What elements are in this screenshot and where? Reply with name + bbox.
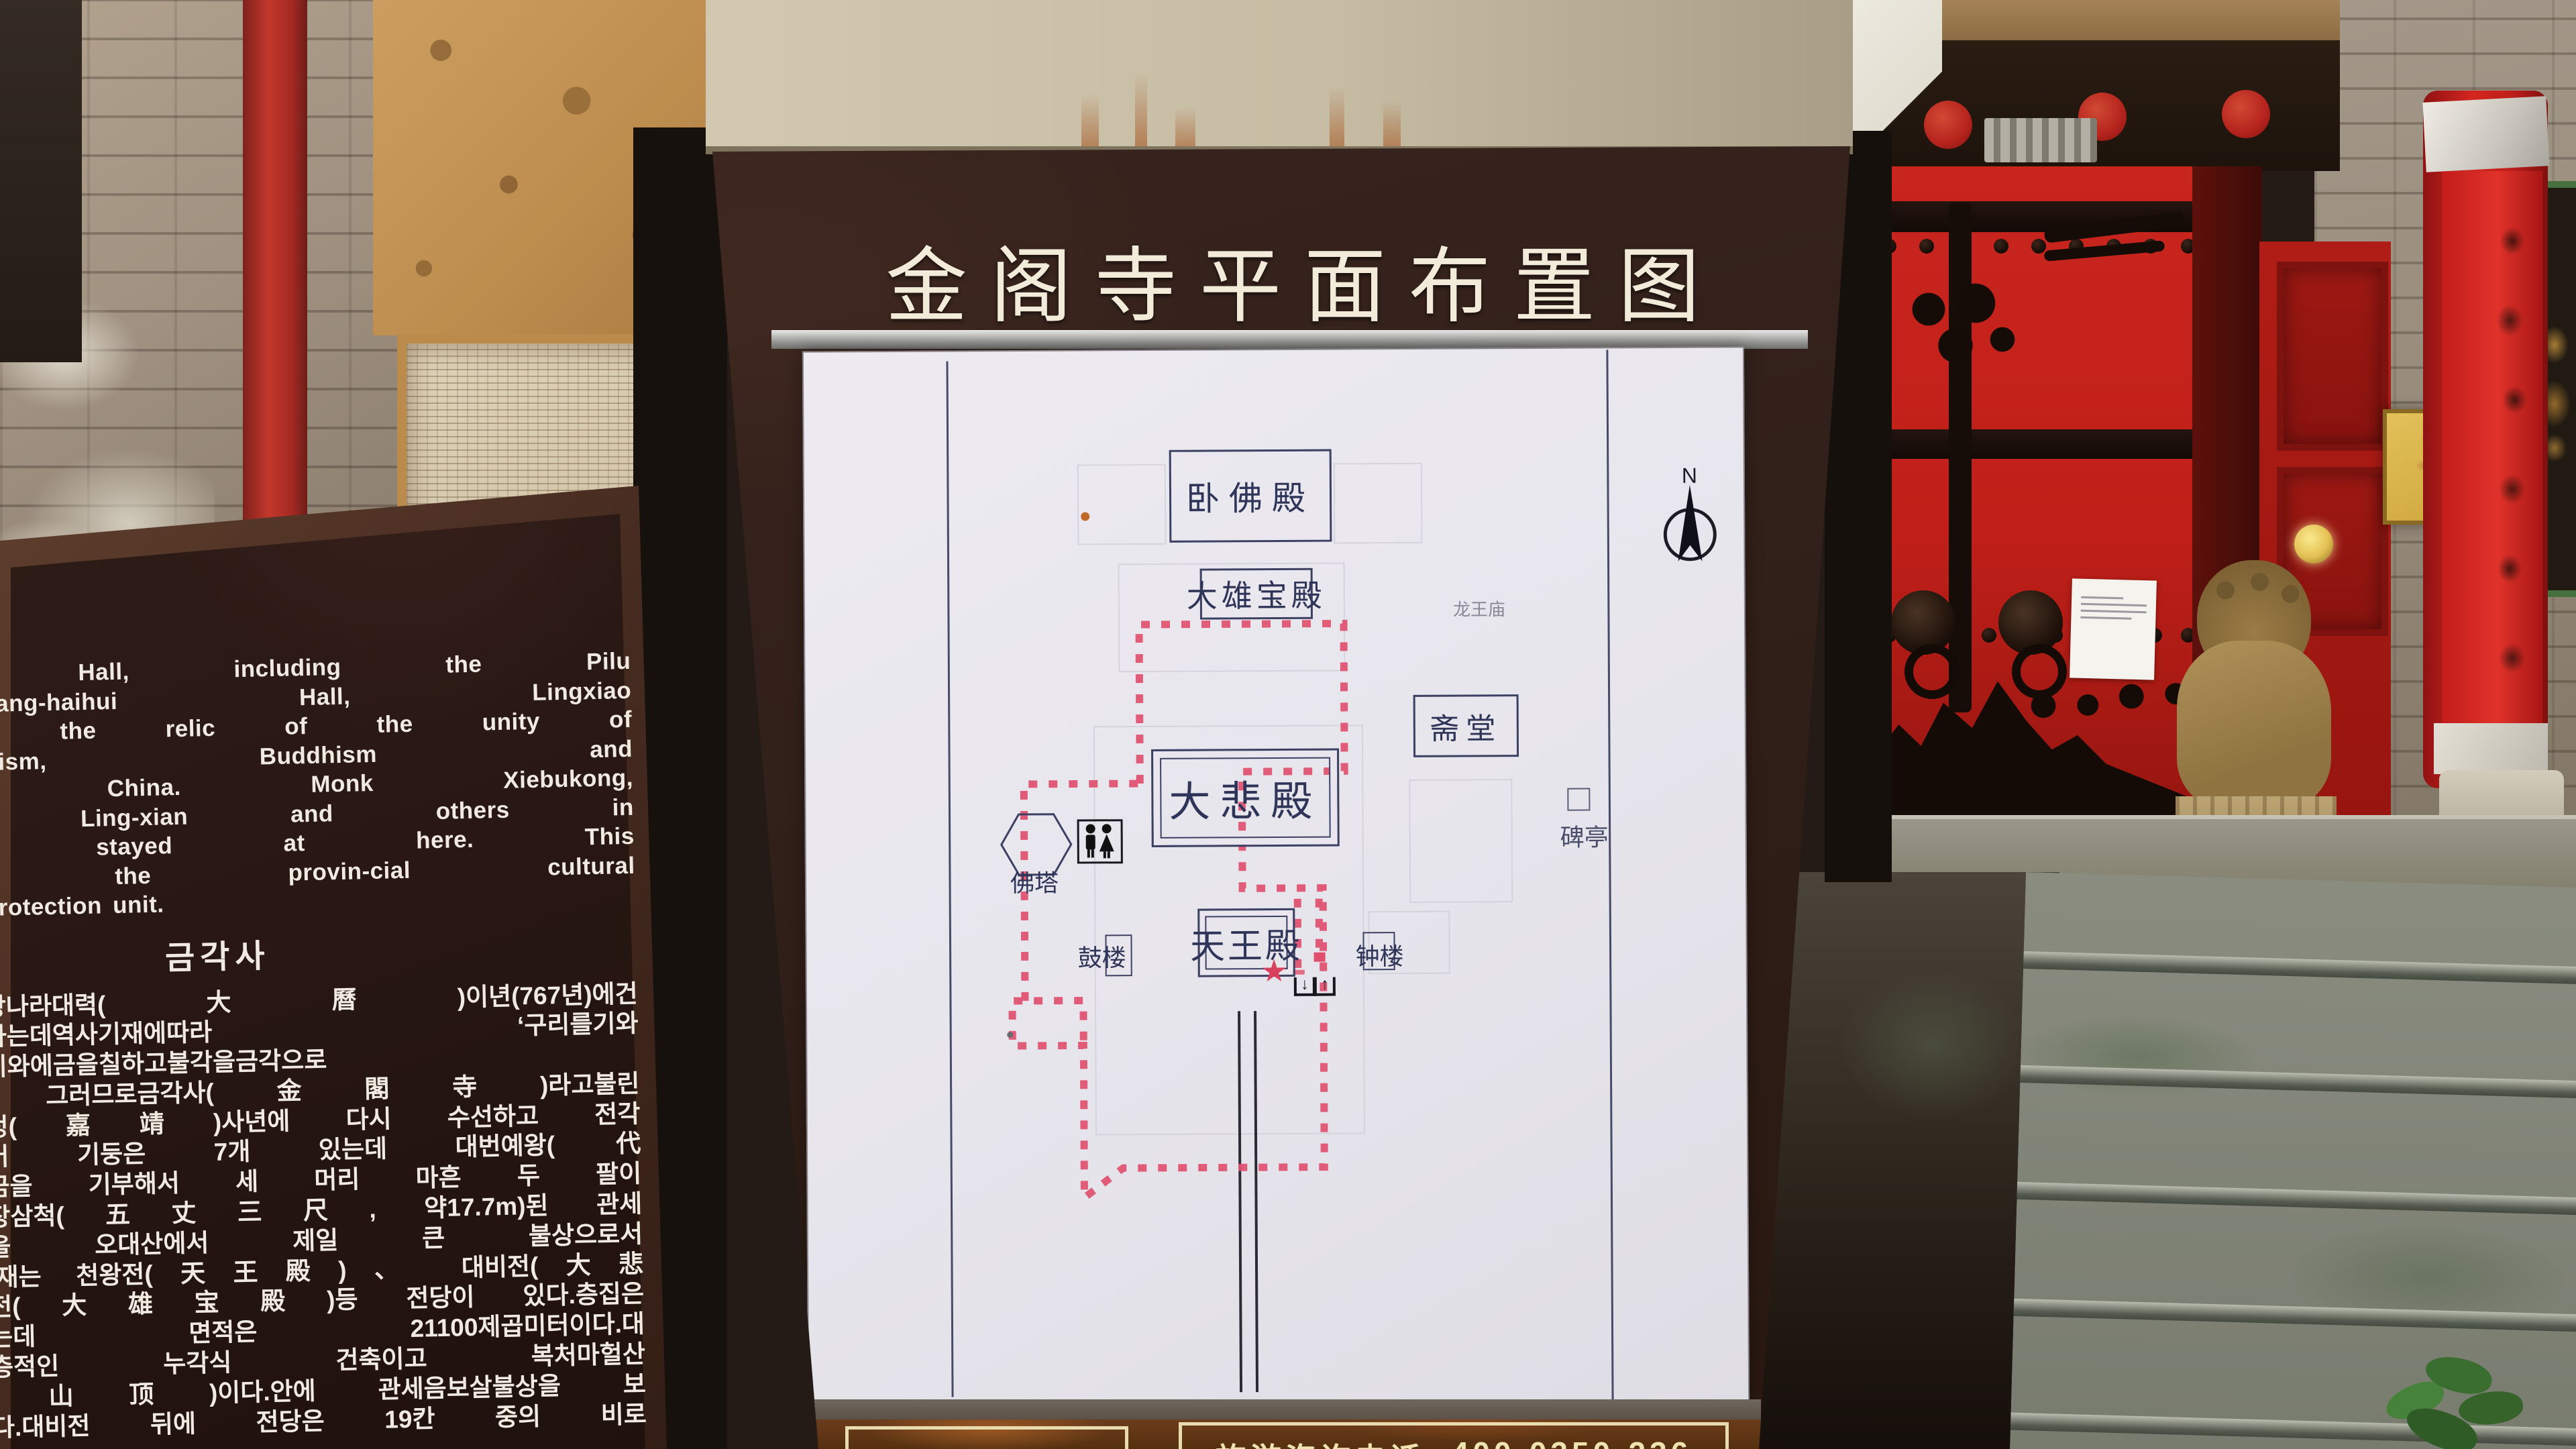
hall-box-zhaitang: 斋堂 xyxy=(1413,694,1519,757)
stele-pavilion-box xyxy=(1567,788,1590,811)
label-beiting: 碑亭 xyxy=(1560,818,1609,853)
hotline-number: 400-0350-236 xyxy=(1452,1435,1692,1449)
door-panel xyxy=(2277,262,2388,451)
scenic-star: ★ xyxy=(1260,953,1289,989)
label-gulou: 鼓楼 xyxy=(1077,938,1126,973)
sign-stone-cap xyxy=(706,0,1853,154)
door-strap xyxy=(1876,429,2196,459)
doorbell xyxy=(2294,525,2333,563)
bar-weathered-top xyxy=(795,1399,1761,1419)
green-plant xyxy=(2378,1345,2526,1449)
up-arrow-icon: ↑ xyxy=(1321,975,1329,994)
banner-calligraphy xyxy=(2489,211,2536,708)
sign-title: 金阁寺平面布置图 xyxy=(771,220,1814,339)
korean-title: 금각사 xyxy=(0,924,476,982)
pillar-bottom-wrap xyxy=(2434,723,2548,774)
label-longwangmiao: 龙王庙 xyxy=(1453,596,1505,621)
hall-box-wofodian: 卧佛殿 xyxy=(1169,449,1332,543)
rust-streak xyxy=(1081,94,1099,154)
hall-box-dabeidian: 大悲殿 xyxy=(1151,749,1340,847)
entry-arrow-box: ↑ xyxy=(1314,977,1336,996)
rust-streak xyxy=(1330,87,1344,154)
rust-dot xyxy=(1081,512,1089,521)
rust-streak xyxy=(1135,74,1147,154)
door-beam-end xyxy=(1924,101,1972,149)
hall-box-daxiongbaodian: 大雄宝殿 xyxy=(1200,568,1313,620)
speck xyxy=(1007,1032,1013,1038)
hall-label: 斋堂 xyxy=(1430,704,1502,748)
pillar-banner xyxy=(2442,171,2542,728)
pillar-silver-band xyxy=(2422,96,2549,172)
metal-bracket xyxy=(1984,118,2097,162)
label-fota: 佛塔 xyxy=(1010,864,1059,899)
hotline-label: 旅游咨询电话 xyxy=(1216,1435,1425,1449)
hall-label: 卧佛殿 xyxy=(1186,472,1315,521)
hall-label: 大悲殿 xyxy=(1169,767,1322,828)
exit-arrow-box: ↓ xyxy=(1294,977,1316,996)
restroom-box xyxy=(1077,819,1123,863)
frame-top-strip xyxy=(771,330,1808,349)
red-door xyxy=(1876,166,2196,836)
label-zhonglou: 钟楼 xyxy=(1355,937,1403,972)
temple-photo-scene: 金阁寺平面布置图 xyxy=(0,0,2576,1449)
lion-body xyxy=(2177,641,2331,808)
red-wall-strip xyxy=(243,0,307,572)
info-box-left xyxy=(845,1426,1128,1449)
info-box-right: 旅游咨询电话 400-0350-236 xyxy=(1179,1422,1729,1449)
temple-map-page: N 卧佛殿 大雄宝殿 斋堂 大悲殿 天王殿 龙王庙 佛塔 鼓楼 钟楼 碑亭 xyxy=(802,346,1750,1408)
compass-n-label: N xyxy=(1682,464,1697,488)
info-bar: 旅游咨询电话 400-0350-236 xyxy=(795,1399,1761,1449)
hall-label: 大雄宝殿 xyxy=(1187,572,1326,616)
down-arrow-icon: ↓ xyxy=(1301,975,1309,994)
door-beam-end xyxy=(2222,90,2270,138)
iron-mountain-motif xyxy=(1876,656,2196,836)
dark-corner-wall xyxy=(0,0,82,362)
stele-text-block: ei Hall, including the Pilu uacang-haihu… xyxy=(0,647,647,1444)
iron-canopy xyxy=(1895,267,2029,388)
